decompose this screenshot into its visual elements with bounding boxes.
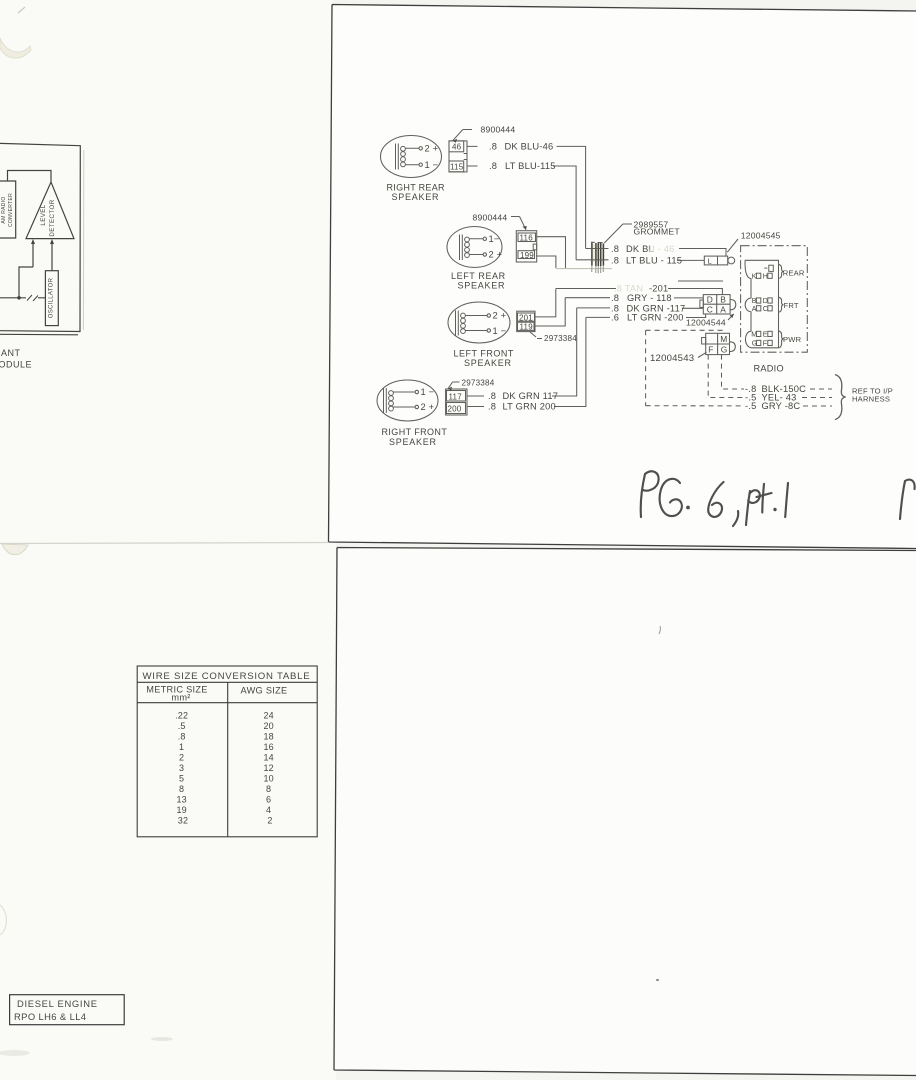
svg-text:mm²: mm²: [171, 693, 190, 703]
svg-text:FRT: FRT: [784, 301, 799, 310]
svg-text:M: M: [720, 334, 727, 344]
svg-text:C: C: [763, 306, 768, 313]
svg-text:LEFT REAR: LEFT REAR: [451, 271, 506, 281]
svg-text:F: F: [708, 345, 713, 355]
svg-text:2 +: 2 +: [493, 311, 507, 321]
svg-text:ANT: ANT: [1, 348, 21, 358]
svg-text:-.5GRY -8C: -.5GRY -8C: [745, 401, 800, 411]
svg-text:1−: 1−: [489, 234, 500, 244]
svg-text:117: 117: [449, 392, 463, 401]
svg-text:SPEAKER: SPEAKER: [464, 358, 512, 368]
svg-text:WIRE SIZE CONVERSION TABLE: WIRE SIZE CONVERSION TABLE: [143, 671, 311, 682]
svg-text:DETECTOR: DETECTOR: [49, 199, 56, 236]
svg-text:D: D: [763, 298, 768, 305]
svg-text:SPEAKER: SPEAKER: [392, 192, 440, 202]
svg-text:2 +: 2 +: [425, 143, 439, 153]
svg-text:U - 46: U - 46: [648, 244, 675, 254]
svg-text:A: A: [720, 304, 726, 314]
svg-text:D: D: [707, 295, 713, 305]
svg-text:G: G: [721, 345, 728, 355]
svg-text:12004543: 12004543: [650, 353, 694, 364]
svg-text:K: K: [752, 273, 757, 280]
svg-text:LEVEL: LEVEL: [40, 204, 47, 225]
svg-text:SPEAKER: SPEAKER: [389, 437, 437, 447]
svg-text:8900444: 8900444: [473, 213, 508, 223]
svg-text:OSCILLATOR: OSCILLATOR: [49, 277, 55, 318]
svg-text:1 −: 1 −: [493, 326, 507, 336]
svg-text:RADIO: RADIO: [754, 363, 784, 373]
svg-text:2973384: 2973384: [462, 379, 495, 388]
svg-text:8900444: 8900444: [481, 125, 516, 135]
svg-text:REAR: REAR: [783, 268, 805, 277]
svg-text:PWR: PWR: [783, 335, 802, 344]
svg-text:H: H: [763, 273, 768, 280]
svg-text:HARNESS: HARNESS: [852, 395, 890, 404]
svg-text:1 −: 1 −: [421, 387, 435, 397]
svg-text:AM RADIO: AM RADIO: [1, 196, 7, 223]
svg-text:2973384: 2973384: [544, 334, 577, 343]
svg-text:201: 201: [519, 313, 533, 322]
svg-text:ODULE: ODULE: [0, 360, 32, 370]
svg-text:AWG SIZE: AWG SIZE: [241, 686, 288, 696]
svg-text:A: A: [752, 306, 757, 313]
svg-text:12004545: 12004545: [741, 230, 781, 240]
svg-text:SPEAKER: SPEAKER: [458, 281, 506, 291]
svg-text:CONVERTER: CONVERTER: [8, 193, 14, 227]
svg-text:200: 200: [448, 404, 462, 413]
svg-text:LEFT FRONT: LEFT FRONT: [454, 349, 514, 359]
svg-text:DIESEL ENGINE: DIESEL ENGINE: [17, 998, 98, 1009]
svg-text:E: E: [763, 331, 768, 338]
svg-text:F: F: [763, 340, 767, 347]
svg-text:119: 119: [520, 323, 534, 332]
svg-text:RIGHT FRONT: RIGHT FRONT: [382, 427, 448, 437]
svg-text:12004544: 12004544: [686, 317, 726, 327]
svg-text:C: C: [707, 304, 713, 314]
svg-text:116: 116: [520, 234, 534, 243]
svg-text:B: B: [752, 298, 757, 305]
svg-text:115: 115: [450, 163, 464, 172]
svg-text:G: G: [752, 340, 758, 347]
svg-text:B: B: [720, 295, 726, 305]
svg-text:RPO LH6 & LL4: RPO LH6 & LL4: [14, 1011, 86, 1022]
svg-text:2 +: 2 +: [421, 402, 435, 412]
svg-text:46: 46: [452, 143, 462, 152]
svg-text:M: M: [751, 331, 757, 338]
svg-text:1 −: 1 −: [425, 160, 439, 170]
svg-text:199: 199: [520, 251, 534, 260]
svg-text:2 +: 2 +: [489, 250, 503, 260]
svg-text:L: L: [708, 257, 712, 266]
svg-text:GROMMET: GROMMET: [634, 227, 681, 237]
